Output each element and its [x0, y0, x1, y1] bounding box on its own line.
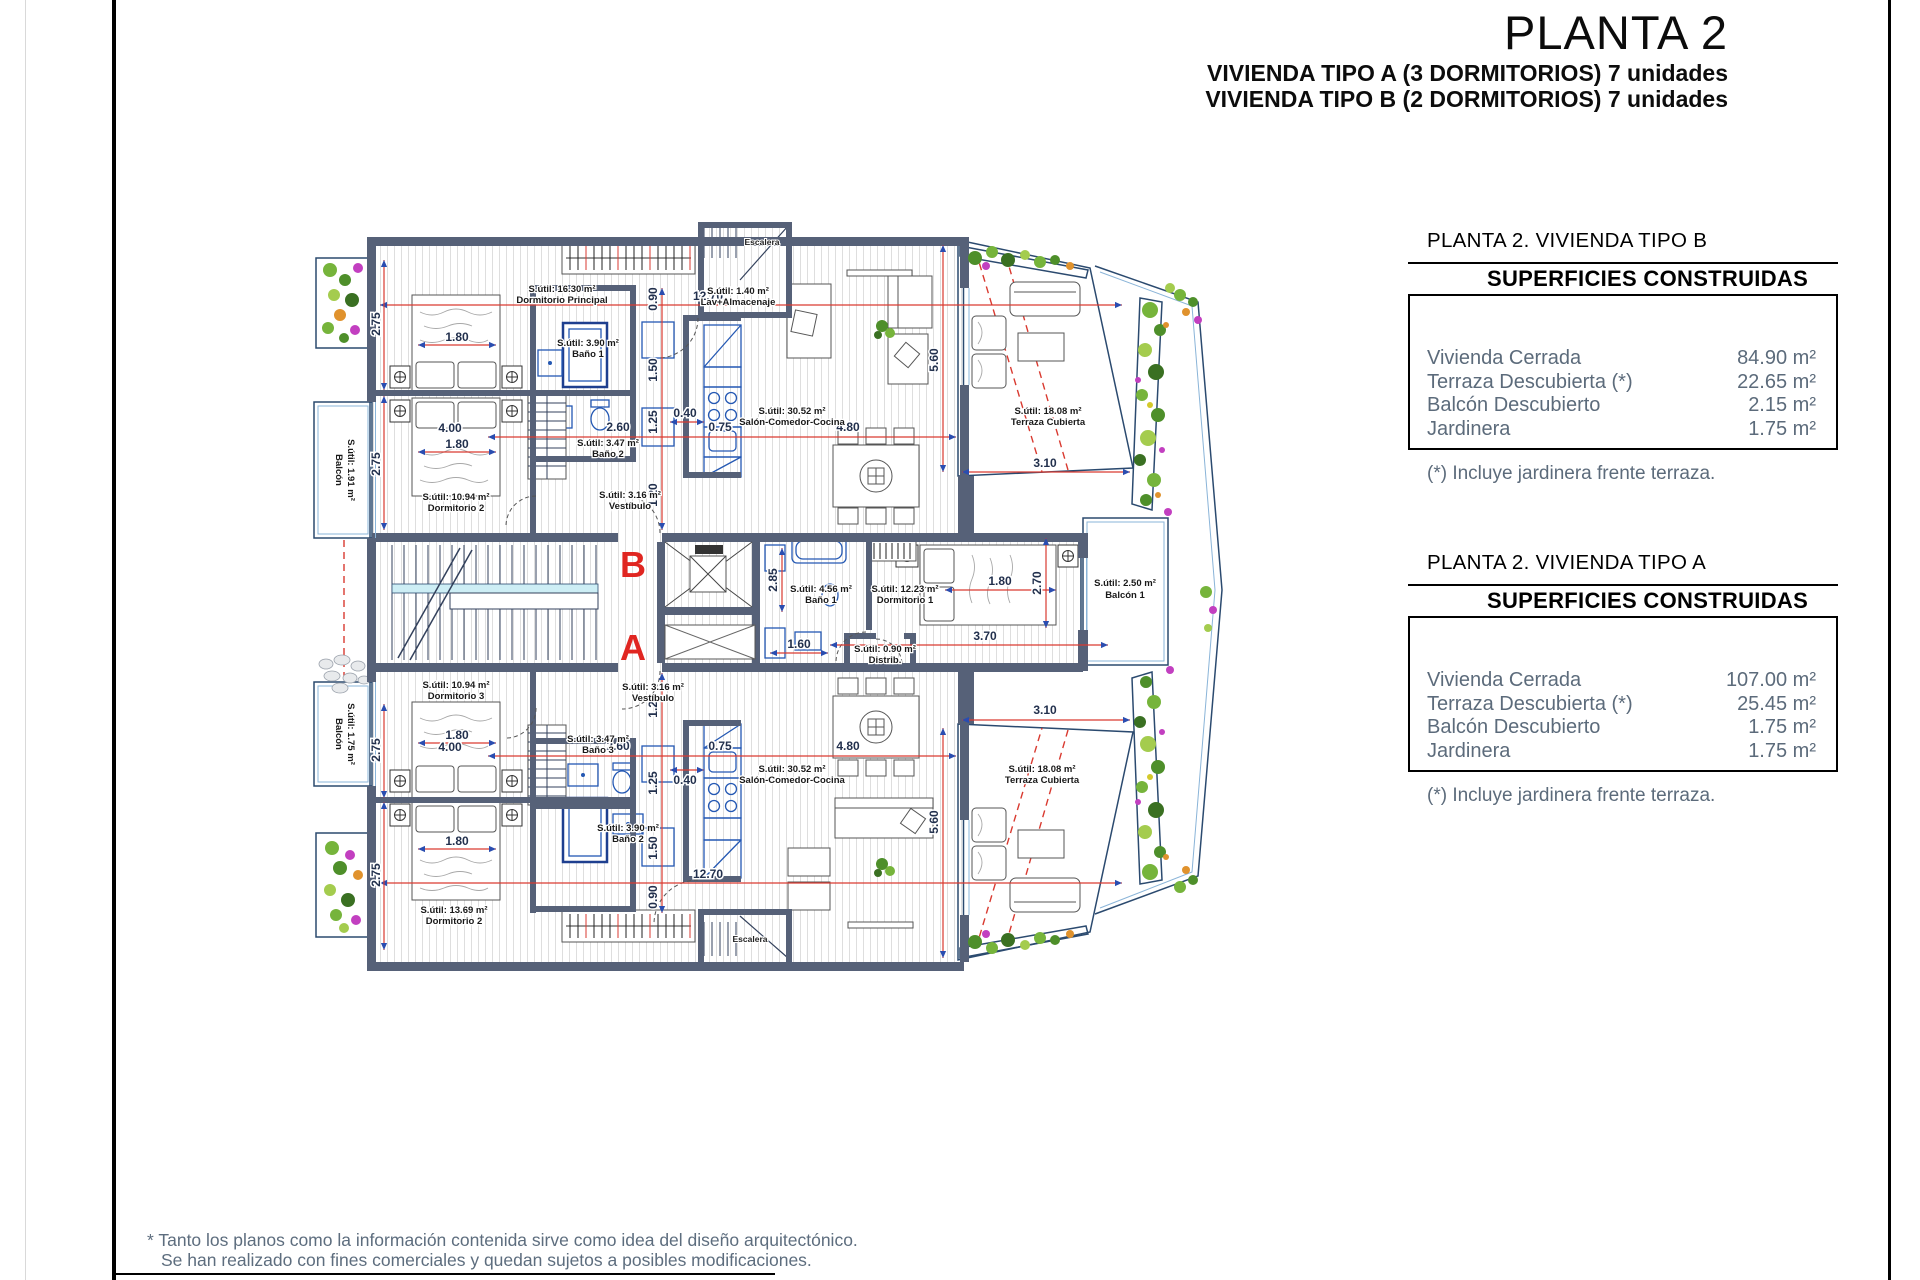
svg-text:5.60: 5.60	[927, 810, 941, 834]
svg-text:Balcón 1: Balcón 1	[1105, 590, 1145, 601]
svg-text:S.útil: 3.16 m²: S.útil: 3.16 m²	[622, 682, 684, 693]
table-footnote: (*) Incluye jardinera frente terraza.	[1408, 463, 1838, 485]
svg-text:Terraza Cubierta: Terraza Cubierta	[1005, 775, 1080, 786]
svg-text:Vestíbulo: Vestíbulo	[609, 501, 651, 512]
svg-text:Baño 3: Baño 3	[582, 745, 614, 756]
svg-text:0.90: 0.90	[646, 885, 660, 909]
svg-text:0.40: 0.40	[673, 773, 697, 787]
svg-text:1.50: 1.50	[646, 836, 660, 860]
table-box: Vivienda Cerrada107.00 m² Terraza Descub…	[1408, 616, 1838, 772]
svg-text:S.útil: 4.56 m²: S.útil: 4.56 m²	[790, 584, 852, 595]
svg-text:2.70: 2.70	[1030, 571, 1044, 595]
svg-text:S.útil: 1.40 m²: S.útil: 1.40 m²	[707, 286, 769, 297]
row-value: 2.15 m²	[1748, 394, 1816, 418]
row-label: Vivienda Cerrada	[1427, 669, 1581, 693]
floor-plan: 12.70 12.70 1.80 1.80 4.00 2.60 0.40 0.7…	[300, 200, 1240, 980]
subtitle-tipo-a: VIVIENDA TIPO A (3 DORMITORIOS) 7 unidad…	[1205, 60, 1728, 86]
svg-text:Escalera: Escalera	[745, 237, 780, 247]
svg-text:S.útil: 16.30 m²: S.útil: 16.30 m²	[528, 284, 595, 295]
svg-text:0.90: 0.90	[646, 287, 660, 311]
row-value: 1.75 m²	[1748, 418, 1816, 442]
row-value: 107.00 m²	[1726, 669, 1816, 693]
svg-text:3.10: 3.10	[1033, 456, 1057, 470]
planter-bottom-left	[316, 833, 372, 937]
svg-text:Salón-Comedor-Cocina: Salón-Comedor-Cocina	[739, 417, 845, 428]
svg-text:S.útil: 1.91 m²: S.útil: 1.91 m²	[345, 439, 356, 501]
table-row: Jardinera1.75 m²	[1410, 740, 1836, 764]
disclaimer: * Tanto los planos como la información c…	[147, 1231, 858, 1270]
svg-text:0.40: 0.40	[673, 406, 697, 420]
svg-text:1.60: 1.60	[787, 637, 811, 651]
svg-text:1.80: 1.80	[445, 834, 469, 848]
svg-text:S.útil: 30.52 m²: S.útil: 30.52 m²	[758, 764, 825, 775]
svg-text:2.75: 2.75	[369, 452, 383, 476]
svg-text:S.útil: 30.52 m²: S.útil: 30.52 m²	[758, 406, 825, 417]
row-label: Jardinera	[1427, 418, 1510, 442]
bed-icon	[412, 295, 500, 393]
row-value: 22.65 m²	[1737, 371, 1816, 395]
bed-icon	[412, 802, 500, 900]
sheet-border-bottom	[113, 1273, 775, 1275]
table-footnote: (*) Incluye jardinera frente terraza.	[1408, 785, 1838, 807]
svg-text:2.75: 2.75	[369, 863, 383, 887]
svg-text:S.útil: 2.50 m²: S.útil: 2.50 m²	[1094, 578, 1156, 589]
svg-text:S.útil: 13.69 m²: S.útil: 13.69 m²	[420, 905, 487, 916]
svg-text:1.50: 1.50	[646, 358, 660, 382]
sheet-border-left	[112, 0, 116, 1280]
svg-text:Baño 2: Baño 2	[612, 834, 644, 845]
svg-text:S.útil: 3.47 m²: S.útil: 3.47 m²	[577, 438, 639, 449]
svg-text:S.útil: 18.08 m²: S.útil: 18.08 m²	[1008, 764, 1075, 775]
svg-text:1.80: 1.80	[445, 437, 469, 451]
table-row: Balcón Descubierto2.15 m²	[1410, 394, 1836, 418]
svg-text:3.10: 3.10	[1033, 703, 1057, 717]
table-box: Vivienda Cerrada84.90 m² Terraza Descubi…	[1408, 294, 1838, 450]
svg-text:S.útil: 1.75 m²: S.útil: 1.75 m²	[345, 703, 356, 765]
svg-text:Dormitorio 1: Dormitorio 1	[877, 595, 934, 606]
svg-text:S.útil: 18.08 m²: S.útil: 18.08 m²	[1014, 406, 1081, 417]
table-row: Vivienda Cerrada84.90 m²	[1410, 347, 1836, 371]
disclaimer-line2: Se han realizado con fines comerciales y…	[147, 1251, 858, 1271]
table-row: Terraza Descubierta (*)22.65 m²	[1410, 371, 1836, 395]
row-label: Vivienda Cerrada	[1427, 347, 1581, 371]
wardrobe-icon	[562, 910, 695, 942]
svg-text:Lav+Almacenaje: Lav+Almacenaje	[701, 297, 776, 308]
table-row: Terraza Descubierta (*)25.45 m²	[1410, 693, 1836, 717]
wardrobe-icon	[562, 242, 695, 274]
svg-text:S.útil: 3.90 m²: S.útil: 3.90 m²	[557, 338, 619, 349]
table-row: Vivienda Cerrada107.00 m²	[1410, 669, 1836, 693]
row-label: Balcón Descubierto	[1427, 394, 1600, 418]
outdoor-sofa-icon	[972, 808, 1080, 912]
svg-text:S.útil: 3.47 m²: S.útil: 3.47 m²	[567, 734, 629, 745]
svg-text:Vestíbulo: Vestíbulo	[632, 693, 674, 704]
unit-marker-b: B	[620, 544, 646, 585]
svg-text:Distrib.: Distrib.	[869, 655, 902, 666]
table-row: Balcón Descubierto1.75 m²	[1410, 716, 1836, 740]
row-label: Balcón Descubierto	[1427, 716, 1600, 740]
table-box-title: SUPERFICIES CONSTRUIDAS	[1408, 586, 1838, 616]
sheet-edge-line	[25, 0, 26, 1280]
disclaimer-line1: * Tanto los planos como la información c…	[147, 1231, 858, 1251]
svg-text:0.75: 0.75	[708, 739, 732, 753]
svg-text:0.75: 0.75	[708, 420, 732, 434]
dining-table-icon	[833, 678, 919, 776]
svg-text:Salón-Comedor-Cocina: Salón-Comedor-Cocina	[739, 775, 845, 786]
svg-text:12.70: 12.70	[693, 867, 723, 881]
table-header: PLANTA 2. VIVIENDA TIPO A	[1408, 550, 1838, 576]
svg-text:Dormitorio 3: Dormitorio 3	[428, 691, 484, 702]
surface-table-tipo-a: PLANTA 2. VIVIENDA TIPO A SUPERFICIES CO…	[1408, 550, 1838, 807]
row-label: Terraza Descubierta (*)	[1427, 693, 1633, 717]
wardrobe-icon	[870, 541, 916, 561]
dining-table-icon	[833, 428, 919, 524]
svg-text:3.70: 3.70	[973, 629, 997, 643]
row-value: 1.75 m²	[1748, 716, 1816, 740]
svg-text:S.útil: 3.90 m²: S.útil: 3.90 m²	[597, 823, 659, 834]
svg-text:Dormitorio 2: Dormitorio 2	[426, 916, 482, 927]
row-value: 84.90 m²	[1737, 347, 1816, 371]
unit-marker-a: A	[620, 627, 646, 668]
svg-text:Balcón: Balcón	[333, 718, 344, 750]
svg-text:1.25: 1.25	[646, 410, 660, 434]
svg-text:2.75: 2.75	[369, 312, 383, 336]
svg-text:Escalera: Escalera	[733, 934, 768, 944]
plan-sheet: PLANTA 2 VIVIENDA TIPO A (3 DORMITORIOS)…	[0, 0, 1920, 1280]
outdoor-sofa-icon	[972, 282, 1080, 388]
svg-text:2.85: 2.85	[766, 568, 780, 592]
svg-text:Dormitorio Principal: Dormitorio Principal	[516, 295, 607, 306]
svg-text:Terraza Cubierta: Terraza Cubierta	[1011, 417, 1086, 428]
svg-text:4.00: 4.00	[438, 421, 462, 435]
sheet-border-right	[1888, 0, 1891, 1280]
svg-text:Balcón: Balcón	[333, 454, 344, 486]
svg-text:1.80: 1.80	[988, 574, 1012, 588]
svg-text:1.80: 1.80	[445, 330, 469, 344]
row-value: 25.45 m²	[1737, 693, 1816, 717]
table-header: PLANTA 2. VIVIENDA TIPO B	[1408, 228, 1838, 254]
page-title: PLANTA 2	[1205, 6, 1728, 60]
svg-text:Dormitorio 2: Dormitorio 2	[428, 503, 484, 514]
svg-text:5.60: 5.60	[927, 348, 941, 372]
svg-text:1.25: 1.25	[646, 771, 660, 795]
row-label: Terraza Descubierta (*)	[1427, 371, 1633, 395]
svg-text:Baño 1: Baño 1	[572, 349, 604, 360]
svg-text:Baño 1: Baño 1	[805, 595, 837, 606]
svg-text:2.75: 2.75	[369, 738, 383, 762]
svg-text:4.00: 4.00	[438, 740, 462, 754]
svg-text:S.útil: 10.94 m²: S.útil: 10.94 m²	[422, 680, 489, 691]
svg-text:4.80: 4.80	[836, 739, 860, 753]
row-value: 1.75 m²	[1748, 740, 1816, 764]
title-block: PLANTA 2 VIVIENDA TIPO A (3 DORMITORIOS)…	[1205, 6, 1728, 112]
row-label: Jardinera	[1427, 740, 1510, 764]
svg-text:Baño 2: Baño 2	[592, 449, 624, 460]
surface-table-tipo-b: PLANTA 2. VIVIENDA TIPO B SUPERFICIES CO…	[1408, 228, 1838, 485]
subtitle-tipo-b: VIVIENDA TIPO B (2 DORMITORIOS) 7 unidad…	[1205, 86, 1728, 112]
svg-text:S.útil: 3.16 m²: S.útil: 3.16 m²	[599, 490, 661, 501]
svg-text:S.útil: 10.94 m²: S.útil: 10.94 m²	[422, 492, 489, 503]
table-box-title: SUPERFICIES CONSTRUIDAS	[1408, 264, 1838, 294]
svg-text:S.útil: 0.90 m²: S.útil: 0.90 m²	[854, 644, 916, 655]
svg-text:2.60: 2.60	[606, 420, 630, 434]
svg-text:S.útil: 12.23 m²: S.útil: 12.23 m²	[871, 584, 938, 595]
table-row: Jardinera1.75 m²	[1410, 418, 1836, 442]
